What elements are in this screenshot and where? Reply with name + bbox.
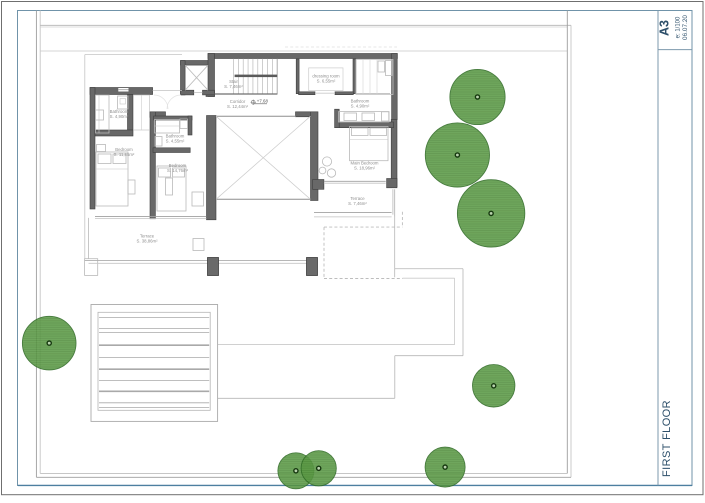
svg-text:S. 4,90m²: S. 4,90m² — [110, 114, 129, 119]
svg-text:S. 18,96m²: S. 18,96m² — [354, 166, 376, 171]
svg-text:+7.68: +7.68 — [257, 99, 269, 104]
svg-text:S. 11,85m²: S. 11,85m² — [114, 152, 135, 157]
svg-text:06.07.20: 06.07.20 — [682, 15, 689, 40]
svg-text:S. 38,86m²: S. 38,86m² — [136, 239, 158, 244]
svg-text:FIRST FLOOR: FIRST FLOOR — [661, 400, 673, 477]
svg-text:S. 12,44m²: S. 12,44m² — [227, 104, 249, 109]
svg-text:S. 4,55m²: S. 4,55m² — [166, 139, 185, 144]
svg-text:S. 7,46m²: S. 7,46m² — [224, 84, 243, 89]
svg-text:S. 14,76m²: S. 14,76m² — [167, 168, 189, 173]
svg-text:S. 7,46m²: S. 7,46m² — [348, 201, 367, 206]
svg-text:A3: A3 — [658, 20, 672, 36]
svg-text:e: 1/100: e: 1/100 — [676, 16, 682, 38]
svg-text:S. 4,90m²: S. 4,90m² — [351, 104, 370, 109]
svg-text:S. 6,55m²: S. 6,55m² — [317, 79, 336, 84]
